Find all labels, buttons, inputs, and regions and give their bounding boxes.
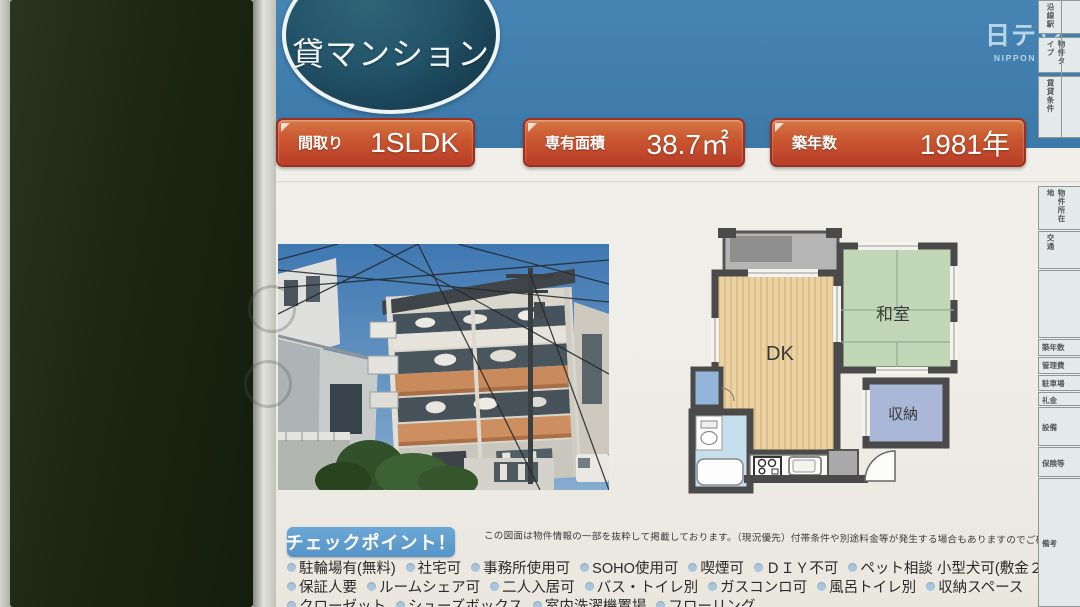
checkpoint-item: 事務所使用可 — [471, 557, 570, 578]
listing-sheet: 貸マンション 間取り 1SLDK 専有面積 38.7㎡ 築年数 1981年 日テ… — [276, 0, 1080, 607]
entrance-door-arc — [865, 451, 895, 481]
bullet-icon — [471, 563, 480, 572]
bullet-icon — [580, 563, 589, 572]
layout-label: 間取り — [298, 132, 343, 153]
bullet-icon — [287, 582, 296, 591]
checkpoint-item: ＤＩＹ不可 — [754, 557, 839, 578]
floor-plan: DK 和室 収納 — [688, 226, 966, 498]
corner-fold-icon — [281, 123, 290, 132]
side-cell-parking: 駐車場 — [1038, 375, 1080, 391]
layout-value: 1SLDK — [370, 127, 459, 159]
side-cell-insurance: 保険等 — [1038, 447, 1080, 477]
checkpoint-row: 保証人要 ルームシェア可 二人入居可 バス・トイレ別 ガスコンロ可 風呂トイレ別… — [287, 577, 1033, 596]
checkpoint-item: 喫煙可 — [688, 557, 744, 578]
side-cell-key-money: 礼金 — [1038, 392, 1080, 406]
japanese-room-label: 和室 — [876, 305, 910, 324]
checkpoint-item: 収納スペース — [926, 576, 1023, 597]
side-cell-year: 築年数 — [1038, 339, 1080, 356]
checkpoint-item: 保証人要 — [287, 576, 357, 597]
area-label: 専有面積 — [545, 132, 605, 153]
bathtub-icon — [697, 459, 743, 485]
checkpoint-heading-badge: チェックポイント！ — [287, 527, 455, 557]
checkpoint-item: 社宅可 — [406, 557, 462, 578]
side-cell-type: 物件タイプ — [1038, 37, 1080, 73]
checkpoint-item: バス・トイレ別 — [585, 576, 699, 597]
utility-pole — [528, 268, 533, 484]
bullet-icon — [287, 601, 296, 607]
bullet-icon — [656, 601, 665, 607]
checkpoint-item: 駐輪場有(無料) — [287, 557, 396, 578]
building-photo — [278, 244, 609, 490]
disclaimer-note: この図面は物件情報の一部を抜粋して掲載しております。（現況優先）付帯条件や別途料… — [484, 527, 1064, 546]
dk-room-label: DK — [766, 343, 794, 365]
side-cell-access: 交通 — [1038, 231, 1080, 269]
utility-room — [693, 369, 721, 407]
bullet-icon — [817, 582, 826, 591]
side-cell-remarks: 備考 — [1038, 478, 1080, 607]
side-cell-line: 沿線駅 — [1038, 0, 1080, 34]
checkpoint-heading: チェックポイント！ — [286, 529, 457, 555]
checkpoint-item: SOHO使用可 — [580, 557, 678, 578]
corner-fold-icon — [528, 123, 537, 132]
floor-plan-svg: DK 和室 収納 — [688, 226, 966, 498]
bullet-icon — [848, 563, 857, 572]
binder-ring-shadow — [244, 360, 292, 408]
paper-crease — [276, 181, 1080, 184]
dark-side-panel — [10, 0, 253, 607]
checkpoint-row: 駐輪場有(無料) 社宅可 事務所使用可 SOHO使用可 喫煙可 ＤＩＹ不可 ペッ… — [287, 558, 1080, 577]
checkpoint-row: クローゼット シューズボックス 室内洗濯機置場 フローリング — [287, 596, 765, 607]
bullet-icon — [926, 582, 935, 591]
side-cell-terms: 賃貸条件 — [1038, 76, 1080, 138]
toilet-tank-icon — [701, 421, 717, 428]
checkpoint-item: シューズボックス — [396, 595, 523, 607]
binder-ring-shadow — [248, 285, 296, 333]
checkpoint-item: ルームシェア可 — [367, 576, 480, 597]
storage-label: 収納 — [888, 406, 918, 423]
year-label: 築年数 — [792, 132, 837, 153]
tv-frame: 貸マンション 間取り 1SLDK 専有面積 38.7㎡ 築年数 1981年 日テ… — [0, 0, 1080, 607]
checkpoint-item: 室内洗濯機置場 — [533, 595, 647, 607]
page-title: 貸マンション — [292, 29, 490, 75]
stove-icon — [754, 457, 781, 476]
area-badge: 専有面積 38.7㎡ — [523, 118, 745, 167]
side-table-divider — [1061, 0, 1062, 138]
checkpoint-item: 風呂トイレ別 — [817, 576, 916, 597]
year-badge: 築年数 1981年 — [770, 118, 1026, 167]
checkpoint-item: 二人入居可 — [490, 576, 575, 597]
checkpoint-item: クローゼット — [287, 595, 386, 607]
bullet-icon — [585, 582, 594, 591]
bullet-icon — [688, 563, 697, 572]
side-cell-blank — [1038, 270, 1080, 338]
checkpoint-item: フローリング — [656, 595, 755, 607]
toilet-icon — [701, 432, 717, 445]
bullet-icon — [287, 563, 296, 572]
bullet-icon — [406, 563, 415, 572]
layout-badge: 間取り 1SLDK — [276, 118, 475, 167]
bullet-icon — [396, 601, 405, 607]
bullet-icon — [708, 582, 717, 591]
bullet-icon — [490, 582, 499, 591]
bullet-icon — [367, 582, 376, 591]
building-photo-svg — [278, 244, 609, 490]
side-cell-address: 物件所在地 — [1038, 186, 1080, 230]
corner-fold-icon — [775, 123, 784, 132]
year-value: 1981年 — [920, 123, 1010, 163]
area-value: 38.7㎡ — [647, 123, 730, 163]
checkpoint-item: ガスコンロ可 — [708, 576, 807, 597]
side-cell-equipment: 設備 — [1038, 407, 1080, 446]
side-cell-fee: 管理費 — [1038, 357, 1080, 374]
bullet-icon — [754, 563, 763, 572]
bullet-icon — [533, 601, 542, 607]
